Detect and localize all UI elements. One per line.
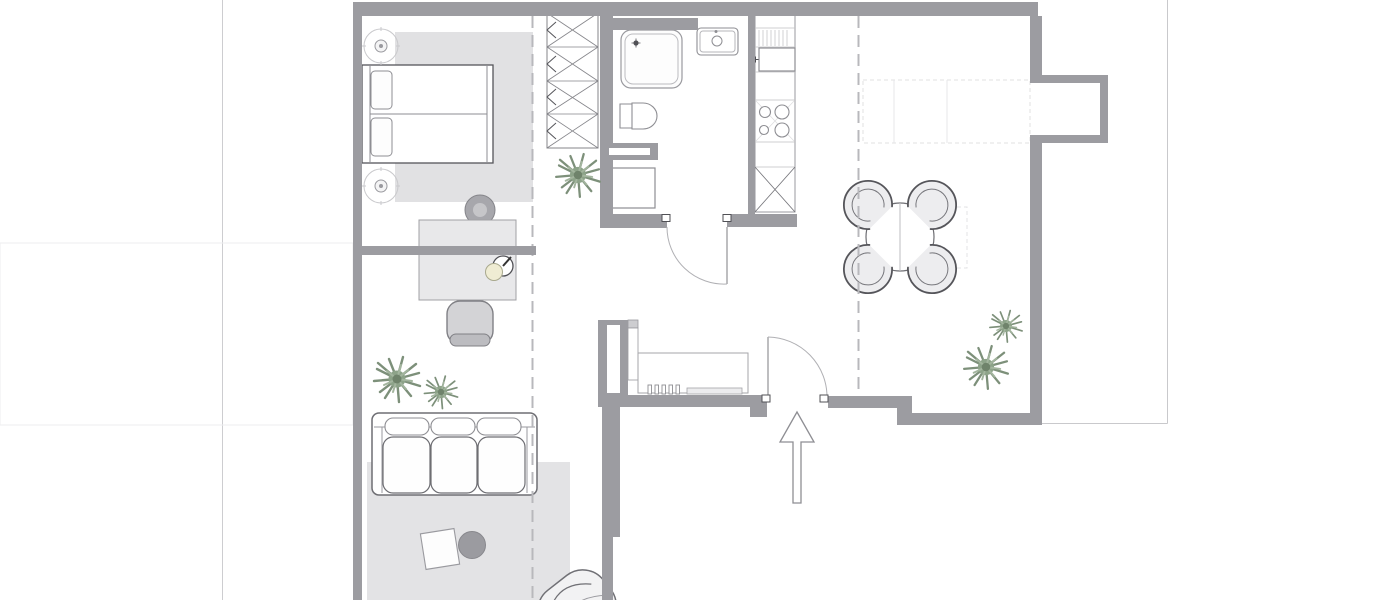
nightstand-lamp-top-dot — [379, 44, 383, 48]
wall-top — [353, 2, 1038, 16]
desk-stool-inner — [473, 203, 487, 217]
shower-tray — [621, 30, 682, 88]
nightstand-lamp-bottom-dot — [379, 184, 383, 188]
entry-arrow — [780, 412, 814, 503]
bath-sink-tap-dot — [715, 30, 718, 33]
slim-cabinet — [628, 328, 638, 380]
wall-bath-left — [600, 14, 613, 215]
dining — [834, 171, 966, 303]
bath-door-arc — [667, 227, 727, 284]
console-book-3 — [662, 385, 666, 394]
entry-door-stop-left — [762, 395, 770, 402]
burner-1 — [760, 107, 771, 118]
wall-bath-bottom-left — [600, 214, 667, 228]
bath-door-stop-left — [662, 215, 670, 222]
sofa-back-cushion-3 — [477, 418, 521, 435]
hallway-furniture — [628, 320, 748, 394]
slim-cabinet-cap — [628, 320, 638, 328]
kitchen-appliance — [759, 48, 795, 71]
floor-plan-svg — [0, 0, 1400, 600]
wall-hall-notch — [750, 407, 767, 417]
wall-niche-bottom — [1030, 135, 1108, 143]
sofa-back-cushion-2 — [431, 418, 475, 435]
coffee-bowl — [459, 532, 486, 559]
wall-bath-shaft — [613, 18, 698, 30]
sofa-seat-cushion-3 — [478, 437, 525, 493]
wall-niche-right — [1100, 75, 1108, 143]
bath-door-stop-right — [723, 215, 731, 222]
wall-hall-closet-niche — [607, 325, 620, 393]
washing-machine — [610, 168, 655, 208]
console-book-5 — [676, 385, 680, 394]
wall-bottom-right — [897, 413, 1038, 425]
sofa-seat-cushion-2 — [431, 437, 477, 493]
toilet — [620, 103, 657, 129]
floor-plan — [0, 0, 1400, 600]
wall-left — [353, 2, 362, 600]
wall-bath-half-niche — [609, 148, 650, 155]
console-table — [638, 353, 748, 393]
wall-bath-kitchen — [748, 14, 755, 214]
burner-3 — [760, 126, 769, 135]
dining-plant-small — [990, 311, 1022, 343]
entry-door-stop-right — [820, 395, 828, 402]
counter-ghost-dividers — [894, 80, 947, 143]
wall-right-upper — [1030, 16, 1042, 75]
wall-niche-top — [1030, 75, 1108, 83]
bedroom-plant — [556, 154, 600, 197]
office-chair-back — [450, 334, 490, 346]
dining-plant-large — [964, 346, 1008, 389]
kitchen — [753, 13, 796, 212]
entry-door-arc — [768, 337, 827, 398]
wall-hall-left-lower — [602, 537, 613, 600]
burner-4 — [775, 123, 789, 137]
console-book-4 — [669, 385, 673, 394]
sofa-seat-cushion-1 — [383, 437, 430, 493]
burner-2 — [775, 105, 789, 119]
bathroom-fixtures — [610, 28, 738, 208]
console-book-2 — [655, 385, 659, 394]
wardrobe — [547, 13, 598, 148]
living-plant-small — [424, 376, 457, 408]
wall-kitchen-bottom — [727, 214, 797, 227]
neighbor-ghost-outline — [0, 243, 353, 425]
wall-right-lower — [1030, 143, 1042, 425]
wall-hall-left-upper — [602, 407, 620, 537]
living-plant-large — [374, 357, 420, 402]
bed-pillow-top — [371, 71, 392, 109]
bed-pillow-bottom — [371, 118, 392, 156]
desk-lamp-base — [486, 264, 503, 281]
console-book-1 — [648, 385, 652, 394]
coffee-book — [420, 529, 459, 570]
console-tray — [687, 388, 742, 394]
wardrobe-outline — [547, 13, 598, 148]
sofa-back-cushion-1 — [385, 418, 429, 435]
wall-hall-bottom — [598, 395, 767, 407]
wall-bedroom-divider — [356, 246, 536, 255]
wall-entry-right — [828, 396, 912, 408]
bath-sink-faucet — [712, 36, 722, 46]
